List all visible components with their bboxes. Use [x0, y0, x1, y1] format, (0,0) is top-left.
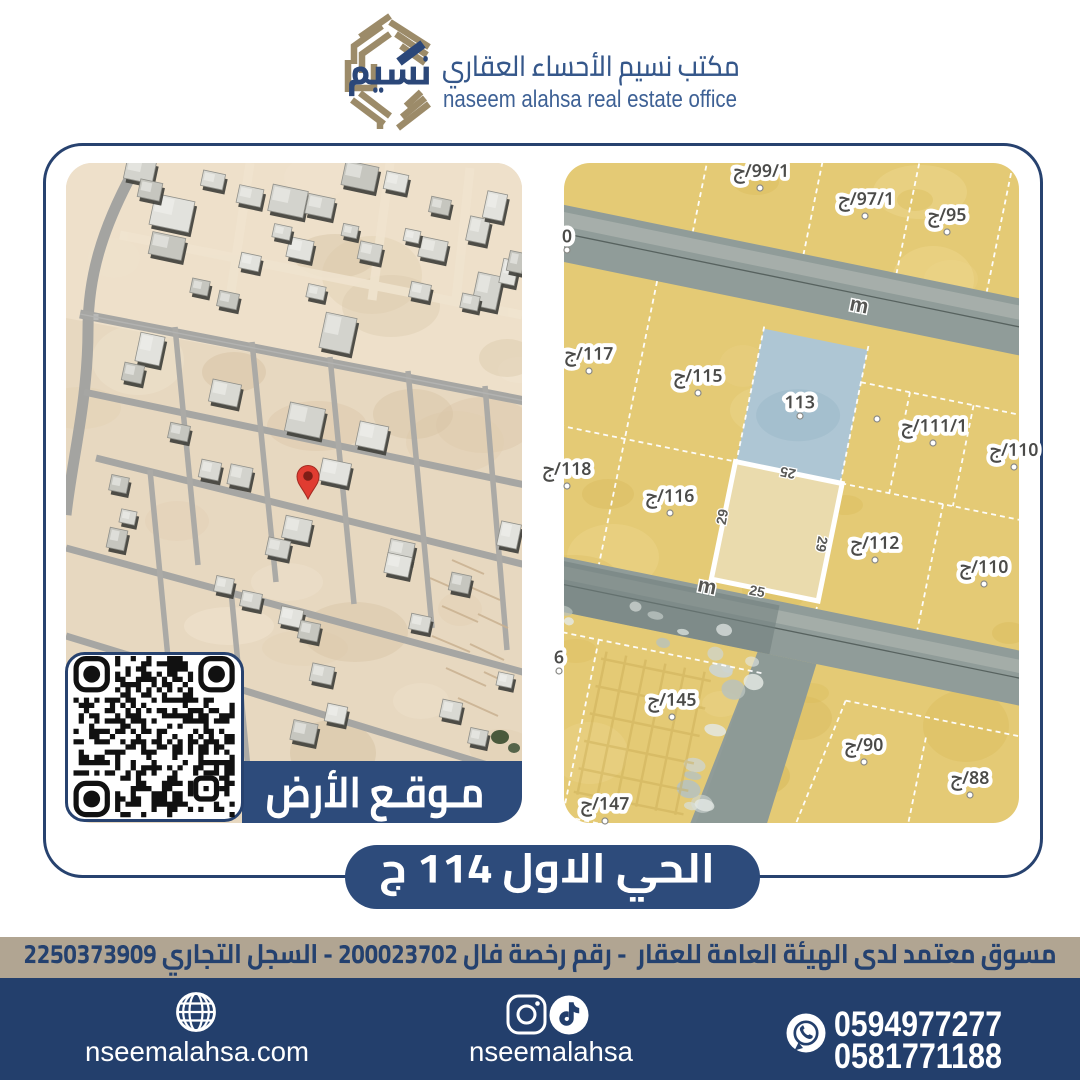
svg-text:nseemalahsa: nseemalahsa — [469, 1036, 633, 1067]
svg-text:29: 29 — [713, 507, 732, 526]
svg-text:0581771188: 0581771188 — [834, 1037, 1002, 1076]
svg-text:naseem alahsa real estate offi: naseem alahsa real estate office — [443, 86, 737, 113]
svg-text:29: 29 — [813, 535, 832, 554]
svg-text:nseemalahsa.com: nseemalahsa.com — [85, 1036, 309, 1067]
